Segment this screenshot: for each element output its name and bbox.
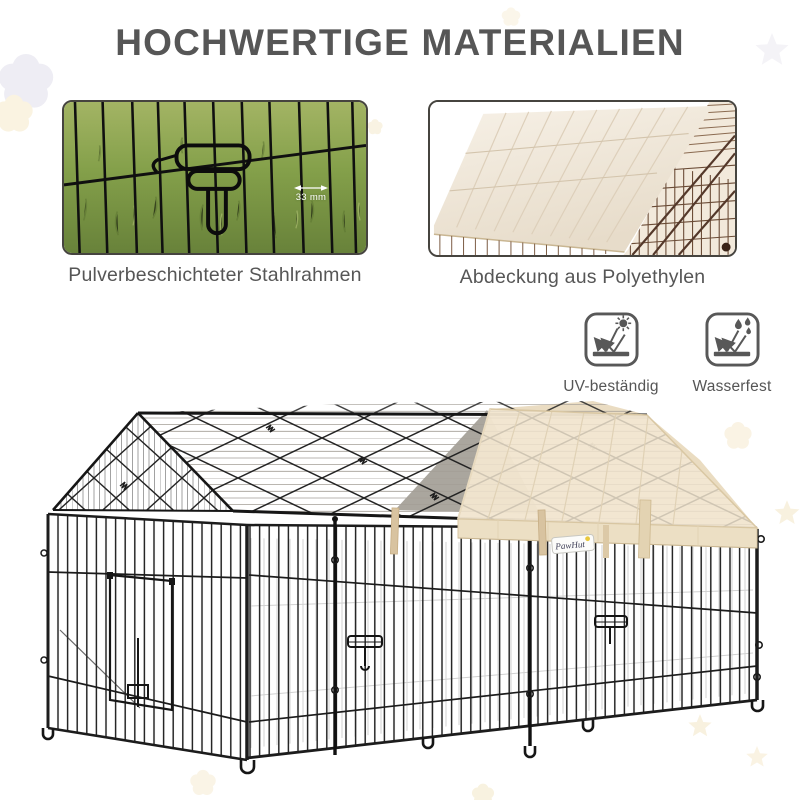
feature-uv-resistant: UV-beständig bbox=[556, 311, 666, 396]
product-render: PawHut bbox=[28, 398, 776, 798]
feature-badges: UV-beständig Wasserfest bbox=[556, 311, 782, 396]
product-feature-graphic: HOCHWERTIGE MATERIALIEN bbox=[0, 0, 800, 800]
caption-steel-frame: Pulverbeschichteter Stahlrahmen bbox=[62, 264, 368, 287]
waterproof-icon bbox=[704, 311, 761, 368]
flower-decoration bbox=[0, 92, 36, 136]
feature-label-waterproof: Wasserfest bbox=[693, 378, 772, 396]
page-title: HOCHWERTIGE MATERIALIEN bbox=[0, 22, 800, 64]
cover-photo bbox=[428, 100, 737, 257]
steel-frame-photo: 33 mm bbox=[62, 100, 368, 255]
measure-arrow-icon bbox=[293, 184, 329, 192]
measurement-annotation: 33 mm bbox=[288, 184, 334, 203]
feature-waterproof: Wasserfest bbox=[682, 311, 782, 396]
uv-resistant-icon bbox=[583, 311, 640, 368]
caption-cover: Abdeckung aus Polyethylen bbox=[428, 266, 737, 289]
inset-cover: Abdeckung aus Polyethylen bbox=[428, 100, 737, 289]
inset-steel-frame: 33 mm Pulverbeschichteter Stahlrahmen bbox=[62, 100, 368, 287]
feature-label-uv: UV-beständig bbox=[563, 378, 658, 396]
star-decoration bbox=[772, 498, 800, 528]
measurement-value: 33 mm bbox=[288, 192, 334, 203]
flower-decoration bbox=[366, 118, 384, 136]
cage-front-wall bbox=[247, 516, 764, 760]
cage-left-wall bbox=[41, 514, 247, 760]
brand-tag: PawHut bbox=[551, 534, 594, 554]
